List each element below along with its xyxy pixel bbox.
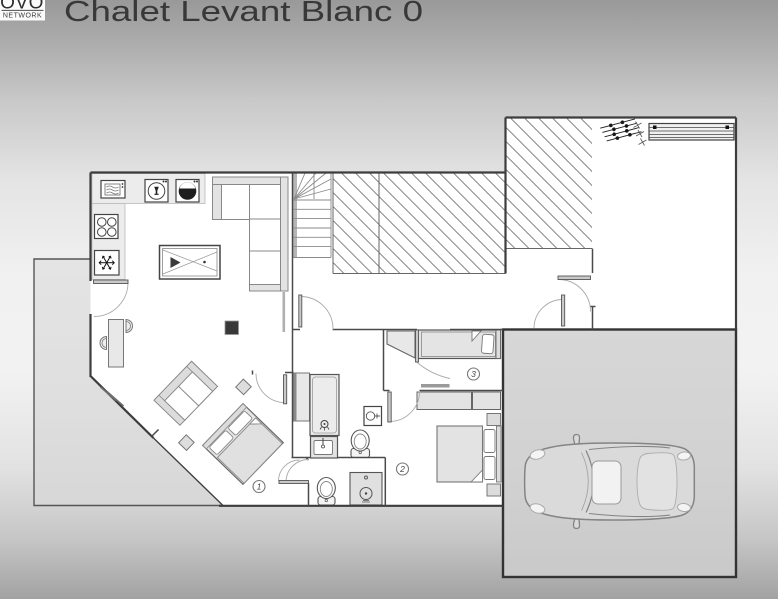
- svg-text:Chalet Levant Blanc 0: Chalet Levant Blanc 0: [64, 0, 423, 28]
- svg-text:OVO: OVO: [0, 0, 44, 14]
- svg-text:1: 1: [257, 482, 262, 492]
- svg-text:3: 3: [471, 369, 476, 379]
- svg-text:NETWORK: NETWORK: [3, 13, 42, 20]
- svg-text:2: 2: [399, 464, 405, 474]
